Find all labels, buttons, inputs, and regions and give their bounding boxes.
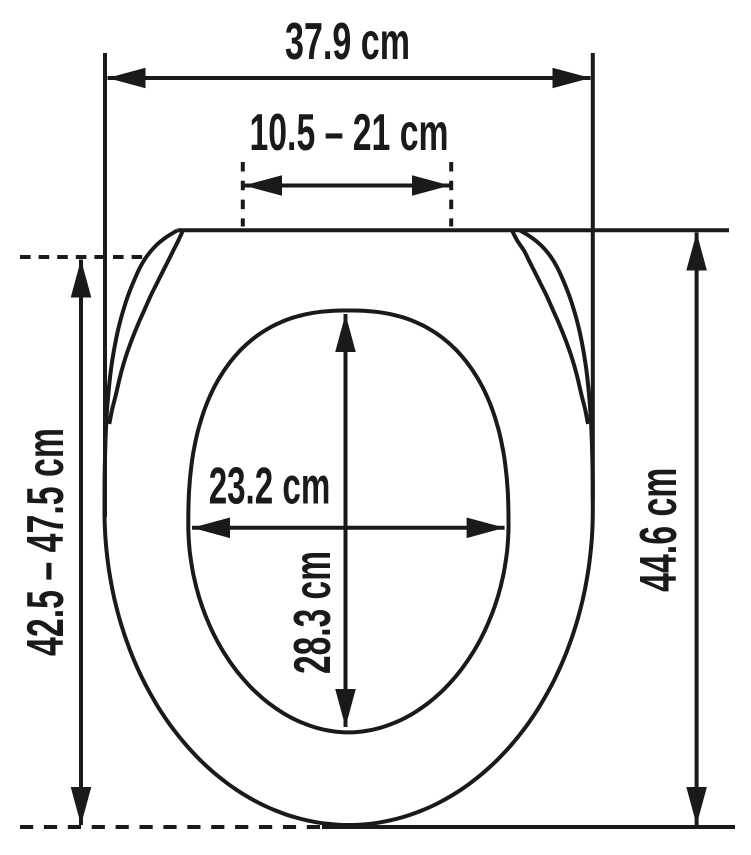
svg-text:23.2 cm: 23.2 cm xyxy=(209,457,331,515)
svg-text:44.6 cm: 44.6 cm xyxy=(630,468,688,592)
svg-text:42.5 – 47.5 cm: 42.5 – 47.5 cm xyxy=(17,428,75,656)
svg-text:10.5 – 21 cm: 10.5 – 21 cm xyxy=(250,104,449,162)
svg-text:28.3 cm: 28.3 cm xyxy=(284,551,342,674)
svg-text:37.9 cm: 37.9 cm xyxy=(285,13,410,71)
